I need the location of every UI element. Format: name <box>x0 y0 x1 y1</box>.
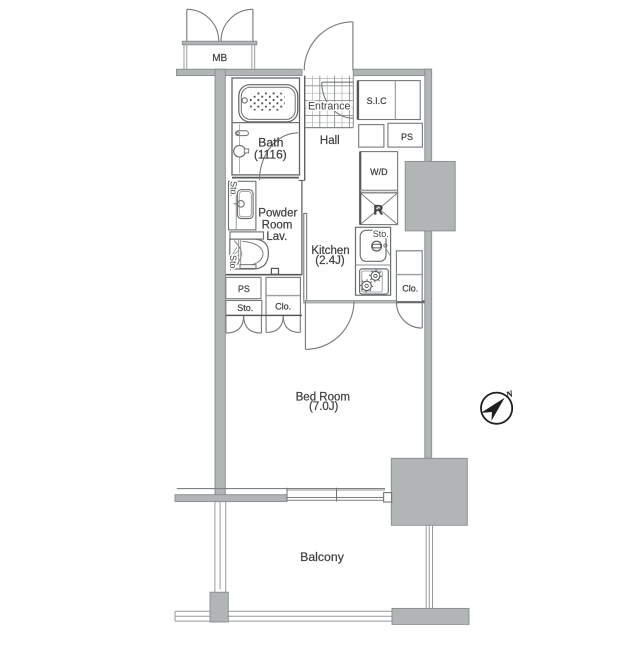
svg-text:PS: PS <box>238 284 250 294</box>
svg-text:Entrance: Entrance <box>308 101 351 113</box>
svg-text:PS: PS <box>401 132 413 142</box>
svg-text:MB: MB <box>212 53 227 64</box>
svg-text:R: R <box>374 203 384 218</box>
svg-text:S.I.C: S.I.C <box>367 96 388 106</box>
svg-text:Hall: Hall <box>320 135 340 147</box>
svg-text:Sto.: Sto. <box>237 303 253 313</box>
svg-text:Sto.: Sto. <box>228 181 238 197</box>
svg-text:Clo.: Clo. <box>275 302 291 312</box>
svg-text:Clo.: Clo. <box>402 284 418 294</box>
svg-text:Room: Room <box>262 219 293 231</box>
svg-text:Sto.: Sto. <box>373 229 389 239</box>
svg-text:(1116): (1116) <box>254 147 287 161</box>
svg-text:Balcony: Balcony <box>300 550 345 564</box>
svg-text:W/D: W/D <box>370 167 388 177</box>
svg-text:Lav.: Lav. <box>266 231 287 243</box>
svg-text:Powder: Powder <box>258 208 297 220</box>
svg-text:Sto.: Sto. <box>228 255 238 271</box>
svg-text:(7.0J): (7.0J) <box>309 401 339 413</box>
svg-text:(2.4J): (2.4J) <box>315 255 345 267</box>
